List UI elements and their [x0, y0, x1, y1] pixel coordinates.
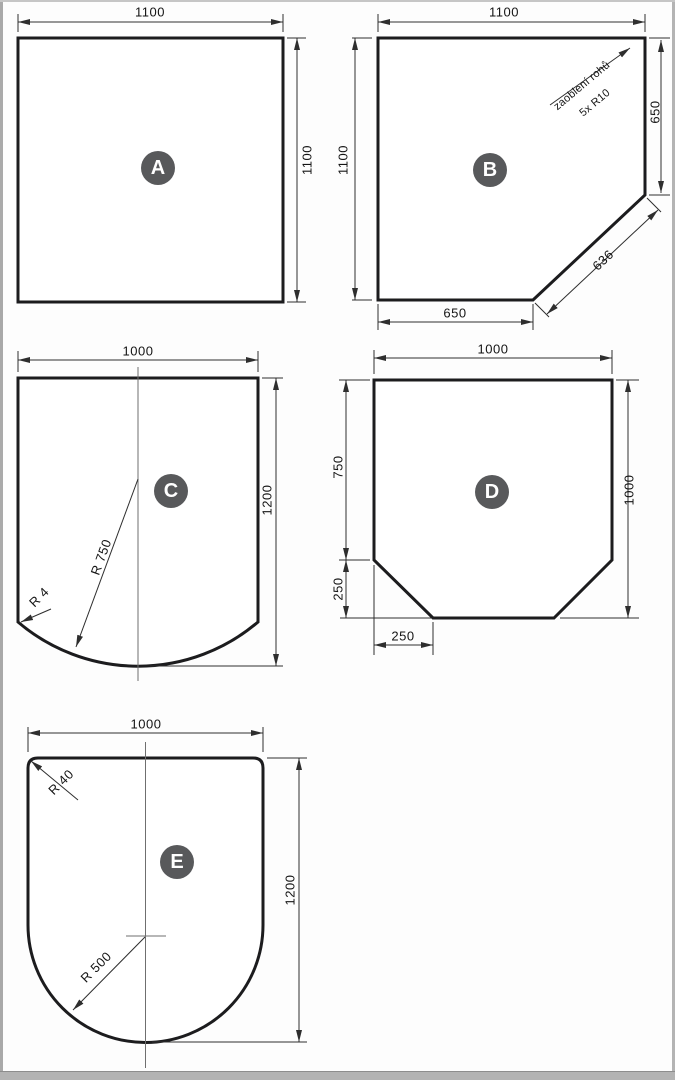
shape-d-height-dim: 1000	[622, 475, 637, 506]
shape-e-height-dim: 1200	[283, 875, 298, 906]
shape-d-left-upper-dim: 750	[331, 455, 346, 478]
shape-b-bottom-dim: 650	[443, 306, 466, 321]
image-top-edge	[0, 0, 675, 2]
shape-b-width-dim: 1100	[489, 5, 519, 20]
shape-d-badge: D	[475, 475, 509, 509]
technical-drawing: 1100 1100 1100 1100 650 636 650 zaoblení…	[0, 0, 675, 1080]
shape-c-height-dim: 1200	[260, 485, 275, 516]
shape-c-badge: C	[154, 474, 188, 508]
shape-b-group	[352, 14, 670, 330]
shape-a-height-dim: 1100	[300, 145, 315, 175]
shape-b-badge: B	[473, 153, 507, 187]
shape-a-width-dim: 1100	[135, 5, 165, 20]
shape-c-group	[18, 351, 283, 681]
shape-b-right-dim: 650	[648, 100, 663, 123]
shape-b-height-dim: 1100	[336, 145, 351, 175]
shape-d-width-dim: 1000	[478, 342, 509, 357]
shape-e-badge: E	[160, 845, 194, 879]
image-bottom-bar	[0, 1071, 675, 1080]
shape-a-badge: A	[141, 151, 175, 185]
shape-d-left-lower-dim: 250	[331, 577, 346, 600]
shape-c-width-dim: 1000	[123, 344, 154, 359]
image-left-edge	[0, 0, 3, 1080]
shape-d-bottom-cut-dim: 250	[391, 629, 414, 644]
shape-e-width-dim: 1000	[131, 717, 162, 732]
